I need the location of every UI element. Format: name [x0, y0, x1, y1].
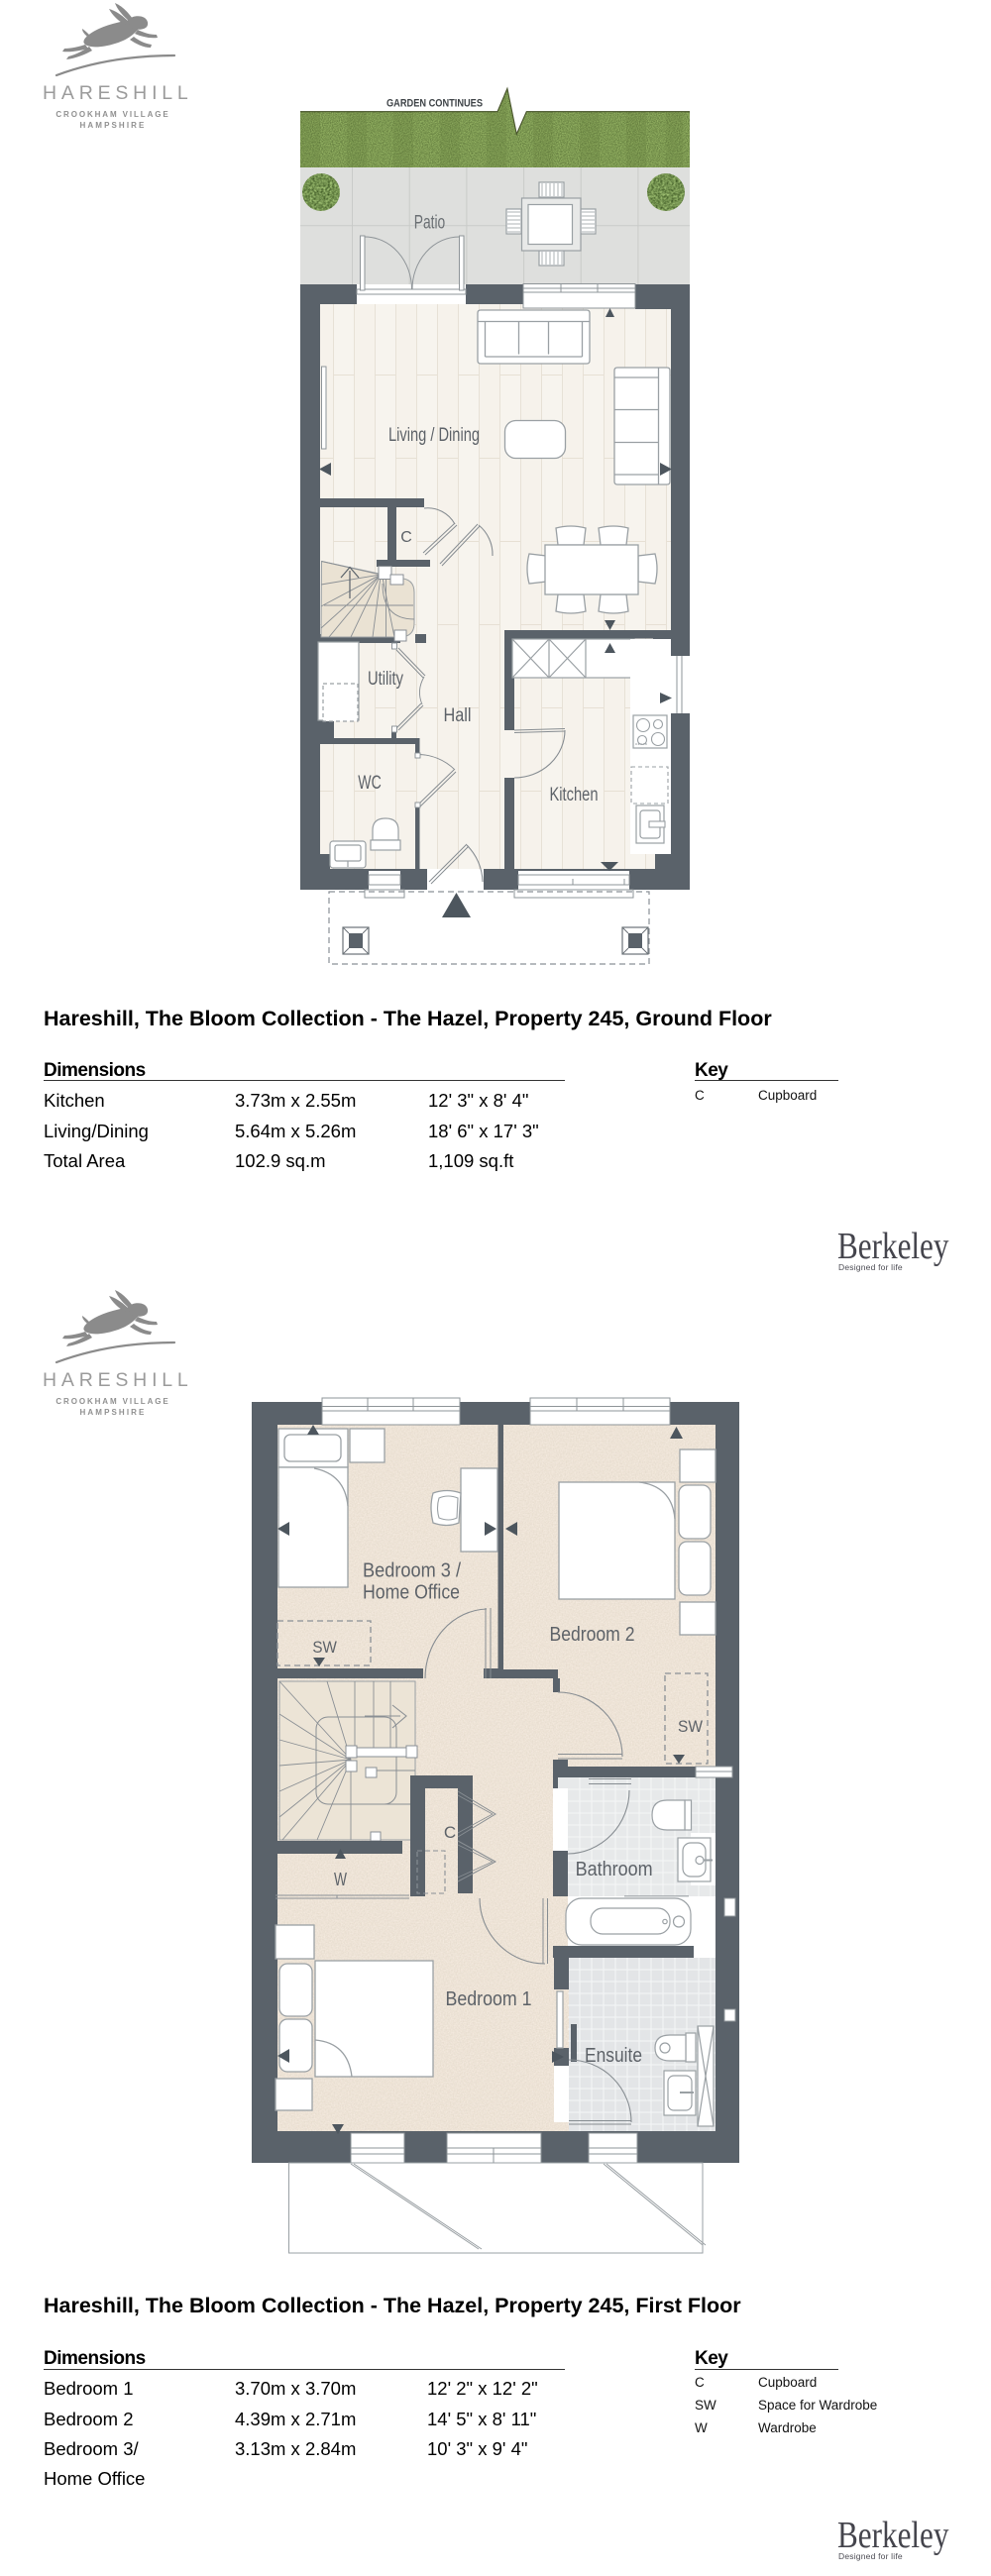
svg-text:Utility: Utility: [368, 669, 403, 690]
svg-text:CROOKHAM VILLAGE: CROOKHAM VILLAGE: [55, 110, 169, 119]
svg-text:Ensuite: Ensuite: [585, 2045, 642, 2067]
svg-text:Bedroom 3 /: Bedroom 3 /: [363, 1560, 461, 1582]
svg-text:Kitchen: Kitchen: [550, 785, 599, 805]
svg-text:Bathroom: Bathroom: [576, 1859, 653, 1880]
svg-text:C: C: [444, 1823, 456, 1842]
svg-text:HAMPSHIRE: HAMPSHIRE: [80, 121, 147, 130]
svg-text:SW: SW: [312, 1638, 337, 1657]
svg-text:Bedroom 2: Bedroom 2: [550, 1624, 635, 1646]
svg-text:HARESHILL: HARESHILL: [43, 82, 193, 104]
svg-text:WC: WC: [358, 773, 382, 794]
svg-text:GARDEN CONTINUES: GARDEN CONTINUES: [386, 98, 483, 110]
svg-text:SW: SW: [678, 1717, 703, 1736]
svg-text:Bedroom 1: Bedroom 1: [446, 1988, 532, 2010]
svg-text:C: C: [400, 529, 412, 546]
svg-text:Living / Dining: Living / Dining: [388, 425, 480, 446]
svg-text:Hall: Hall: [444, 705, 472, 726]
svg-text:W: W: [334, 1870, 347, 1889]
svg-text:Patio: Patio: [414, 213, 446, 234]
svg-text:Home Office: Home Office: [363, 1582, 460, 1604]
